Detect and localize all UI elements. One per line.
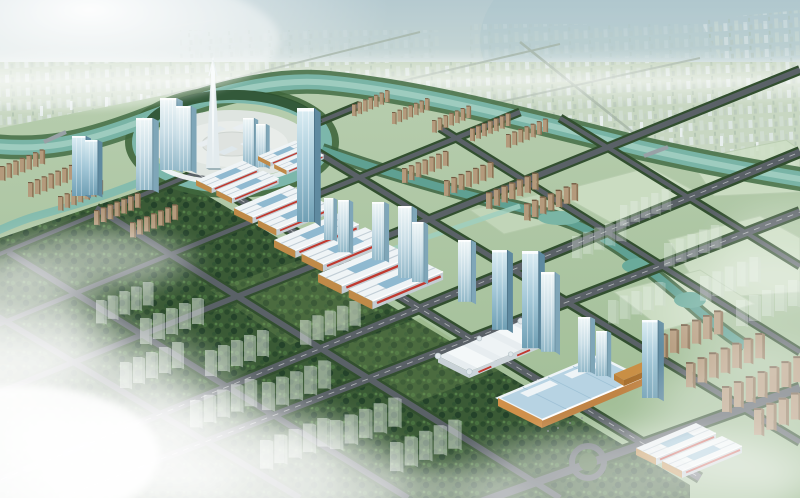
aerial-rendering: Aerial master-plan rendering of a new ci… <box>0 0 800 498</box>
